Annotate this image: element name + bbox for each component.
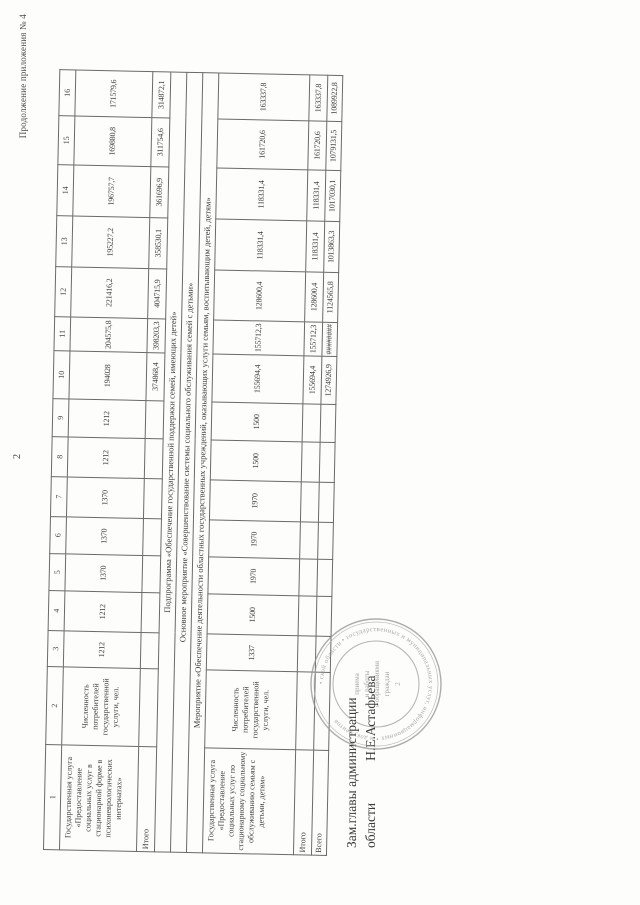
empty-cell [300, 522, 319, 559]
column-number-cell: 3 [47, 631, 64, 667]
indicator-cell: Численность потребителей государственной… [62, 667, 141, 747]
value-cell: 1370 [66, 477, 144, 519]
page-number: 2 [12, 454, 23, 459]
subtotal-value-cell: 128600,4 [305, 272, 324, 322]
empty-cell [140, 633, 159, 669]
scanned-page: Продолжение приложения № 4 2 1 2 3 4 5 6… [0, 0, 640, 905]
subtotal-value-cell: 374868,4 [146, 353, 165, 401]
subtotal-value-cell: 361696,9 [150, 167, 169, 218]
value-cell: 1212 [68, 399, 146, 439]
value-cell: 1212 [63, 631, 141, 669]
value-cell: 163337,8 [218, 73, 310, 121]
empty-cell [318, 522, 334, 559]
subtotal-value-cell: 161720,6 [308, 121, 327, 170]
empty-cell [145, 401, 164, 439]
column-number-cell: 16 [59, 70, 76, 116]
value-cell: 128600,4 [214, 270, 306, 322]
value-cell: 1370 [65, 554, 143, 593]
total-value-cell: 1274926,9 [321, 356, 337, 404]
subtotal-value-cell: 358530,1 [149, 218, 168, 269]
subtotal-value-cell: 155712,3 [304, 322, 323, 356]
column-number-cell: 14 [57, 165, 74, 216]
empty-cell [144, 439, 163, 479]
value-cell: 155712,3 [213, 320, 305, 356]
subtotal-value-cell: 163337,8 [309, 75, 328, 121]
value-cell: 1500 [207, 594, 299, 636]
total-value-cell: ######## [322, 322, 338, 356]
signature-title-line2: области [361, 803, 380, 848]
value-cell: 196757,7 [73, 165, 151, 218]
subtotal-value-cell: 404715,9 [148, 269, 167, 319]
value-cell: 161720,6 [217, 119, 309, 170]
total-value-cell: 1017030,1 [325, 170, 341, 221]
total-label: Всего [311, 750, 328, 855]
column-number-cell: 15 [58, 116, 75, 165]
indicator-cell: Численность потребителей государственной… [205, 670, 298, 750]
value-cell: 1212 [67, 437, 145, 479]
column-number-cell: 9 [52, 399, 69, 437]
empty-cell [139, 668, 159, 746]
service-name-cell: Государственная услуга «Предоставление с… [202, 748, 295, 855]
stamp-center-line: граждан [383, 671, 391, 696]
value-cell: 118331,4 [216, 168, 308, 221]
value-cell: 1370 [66, 517, 144, 556]
column-number-cell: 5 [49, 554, 66, 591]
value-cell: 195227,2 [72, 216, 150, 269]
value-cell: 221416,2 [71, 267, 149, 319]
subtotal-label: Итого [136, 746, 156, 851]
round-stamp: • ской области • государственных и муниц… [307, 615, 445, 753]
service-row-2: Государственная услуга «Предоставление с… [202, 73, 309, 855]
total-value-cell: 1013863,3 [324, 221, 340, 272]
empty-cell [302, 404, 321, 442]
empty-cell [320, 404, 336, 442]
empty-cell [141, 593, 160, 633]
total-value-cell: 1079131,5 [326, 121, 342, 170]
value-cell: 118331,4 [215, 219, 307, 272]
total-value-cell: 1124565,8 [323, 272, 339, 322]
stamp-center-line: с обращениями [373, 661, 381, 707]
empty-cell [301, 442, 320, 482]
subtotal-value-cell: 118331,4 [307, 170, 326, 221]
subtotal-value-cell: 118331,4 [306, 221, 325, 272]
value-cell: 169880,8 [74, 116, 152, 167]
empty-cell [319, 442, 335, 482]
empty-cell [142, 556, 161, 593]
value-cell: 1337 [206, 634, 298, 672]
empty-cell [143, 519, 162, 556]
value-cell: 155694,4 [212, 354, 304, 404]
column-number-cell: 7 [50, 477, 67, 517]
column-number-cell: 12 [55, 267, 72, 317]
empty-cell [143, 479, 162, 519]
column-number-cell: 13 [56, 216, 73, 267]
value-cell: 204575,8 [70, 317, 148, 353]
value-cell: 1970 [209, 480, 301, 522]
value-cell: 1970 [209, 520, 301, 559]
subtotal-label: Итого [293, 750, 313, 855]
subtotal-value-cell: 398203,3 [147, 319, 166, 353]
value-cell: 1970 [208, 557, 300, 596]
empty-cell [299, 559, 318, 596]
rotated-canvas: Продолжение приложения № 4 2 1 2 3 4 5 6… [0, 0, 640, 905]
stamp-center-line: 2 [394, 682, 402, 686]
empty-cell [317, 559, 333, 596]
column-number-cell: 6 [50, 517, 67, 554]
subtotal-value-cell: 314872,1 [152, 72, 171, 118]
value-cell: 1500 [211, 402, 303, 442]
stamp-center-line: приема [353, 672, 361, 694]
stamp-center-line: и работы [363, 670, 371, 697]
subtotal-value-cell: 155694,4 [303, 356, 322, 404]
column-number-cell: 4 [48, 591, 65, 631]
value-cell: 171579,6 [75, 70, 153, 118]
empty-cell [318, 482, 334, 522]
continuation-note: Продолжение приложения № 4 [18, 14, 28, 138]
value-cell: 1212 [64, 591, 142, 633]
budget-table: 1 2 3 4 5 6 7 8 9 10 11 12 13 14 15 16 Г… [43, 69, 343, 856]
value-cell: 1500 [210, 440, 302, 482]
column-number-cell: 2 [46, 667, 64, 745]
empty-cell [300, 482, 319, 522]
column-number-cell: 11 [54, 317, 71, 351]
subtotal-value-cell: 311754,6 [151, 118, 170, 167]
value-cell: 194028 [69, 351, 147, 401]
column-number-cell: 8 [51, 437, 68, 477]
column-number-cell: 10 [53, 351, 70, 399]
service-name-cell: Государственная услуга «Предоставление с… [60, 745, 139, 852]
total-value-cell: 1089922,8 [327, 75, 343, 121]
